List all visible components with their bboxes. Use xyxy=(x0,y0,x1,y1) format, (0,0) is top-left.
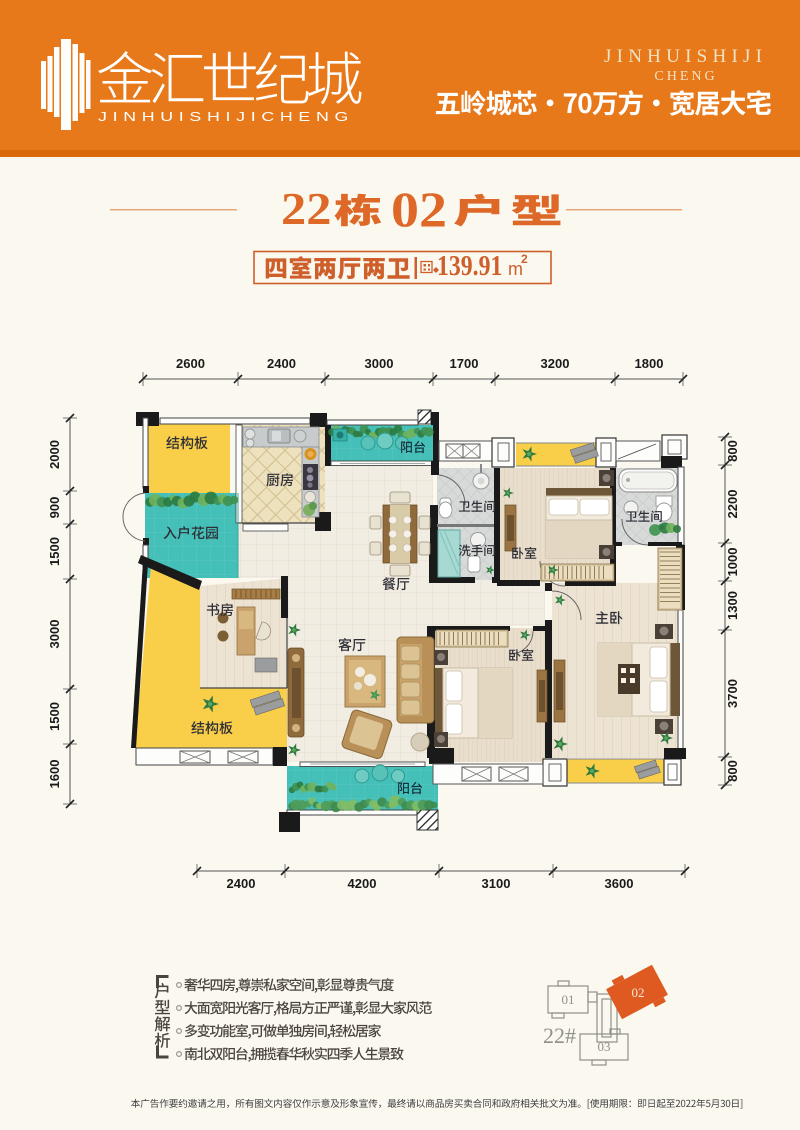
svg-text:2000: 2000 xyxy=(47,440,62,469)
svg-text:3100: 3100 xyxy=(482,876,511,891)
svg-text:22#: 22# xyxy=(543,1023,576,1048)
svg-text:2200: 2200 xyxy=(725,490,740,519)
svg-text:3200: 3200 xyxy=(541,356,570,371)
svg-text:02: 02 xyxy=(391,183,447,238)
svg-text:02: 02 xyxy=(632,985,645,1000)
svg-text:800: 800 xyxy=(725,760,740,782)
svg-text:2400: 2400 xyxy=(227,876,256,891)
svg-text:2600: 2600 xyxy=(176,356,205,371)
svg-text:3600: 3600 xyxy=(605,876,634,891)
svg-text:3700: 3700 xyxy=(725,679,740,708)
svg-text:3000: 3000 xyxy=(365,356,394,371)
svg-text:1600: 1600 xyxy=(47,760,62,789)
svg-text:1700: 1700 xyxy=(450,356,479,371)
svg-text:03: 03 xyxy=(598,1039,611,1054)
svg-text:01: 01 xyxy=(562,992,575,1007)
svg-text:1500: 1500 xyxy=(47,702,62,731)
svg-text:900: 900 xyxy=(47,497,62,519)
svg-text:1000: 1000 xyxy=(725,548,740,577)
svg-text:1300: 1300 xyxy=(725,591,740,620)
svg-text:JINHUISHIJICHENG: JINHUISHIJICHENG xyxy=(98,110,354,124)
svg-text:139.91: 139.91 xyxy=(437,249,502,282)
svg-text:2400: 2400 xyxy=(267,356,296,371)
svg-text:JINHUISHIJI: JINHUISHIJI xyxy=(604,46,767,67)
svg-text:2: 2 xyxy=(521,252,528,266)
svg-text:22: 22 xyxy=(281,184,331,234)
svg-text:1800: 1800 xyxy=(635,356,664,371)
svg-text:800: 800 xyxy=(725,440,740,462)
svg-text:CHENG: CHENG xyxy=(654,69,717,84)
svg-text:3000: 3000 xyxy=(47,620,62,649)
svg-text:4200: 4200 xyxy=(348,876,377,891)
svg-text:1500: 1500 xyxy=(47,537,62,566)
